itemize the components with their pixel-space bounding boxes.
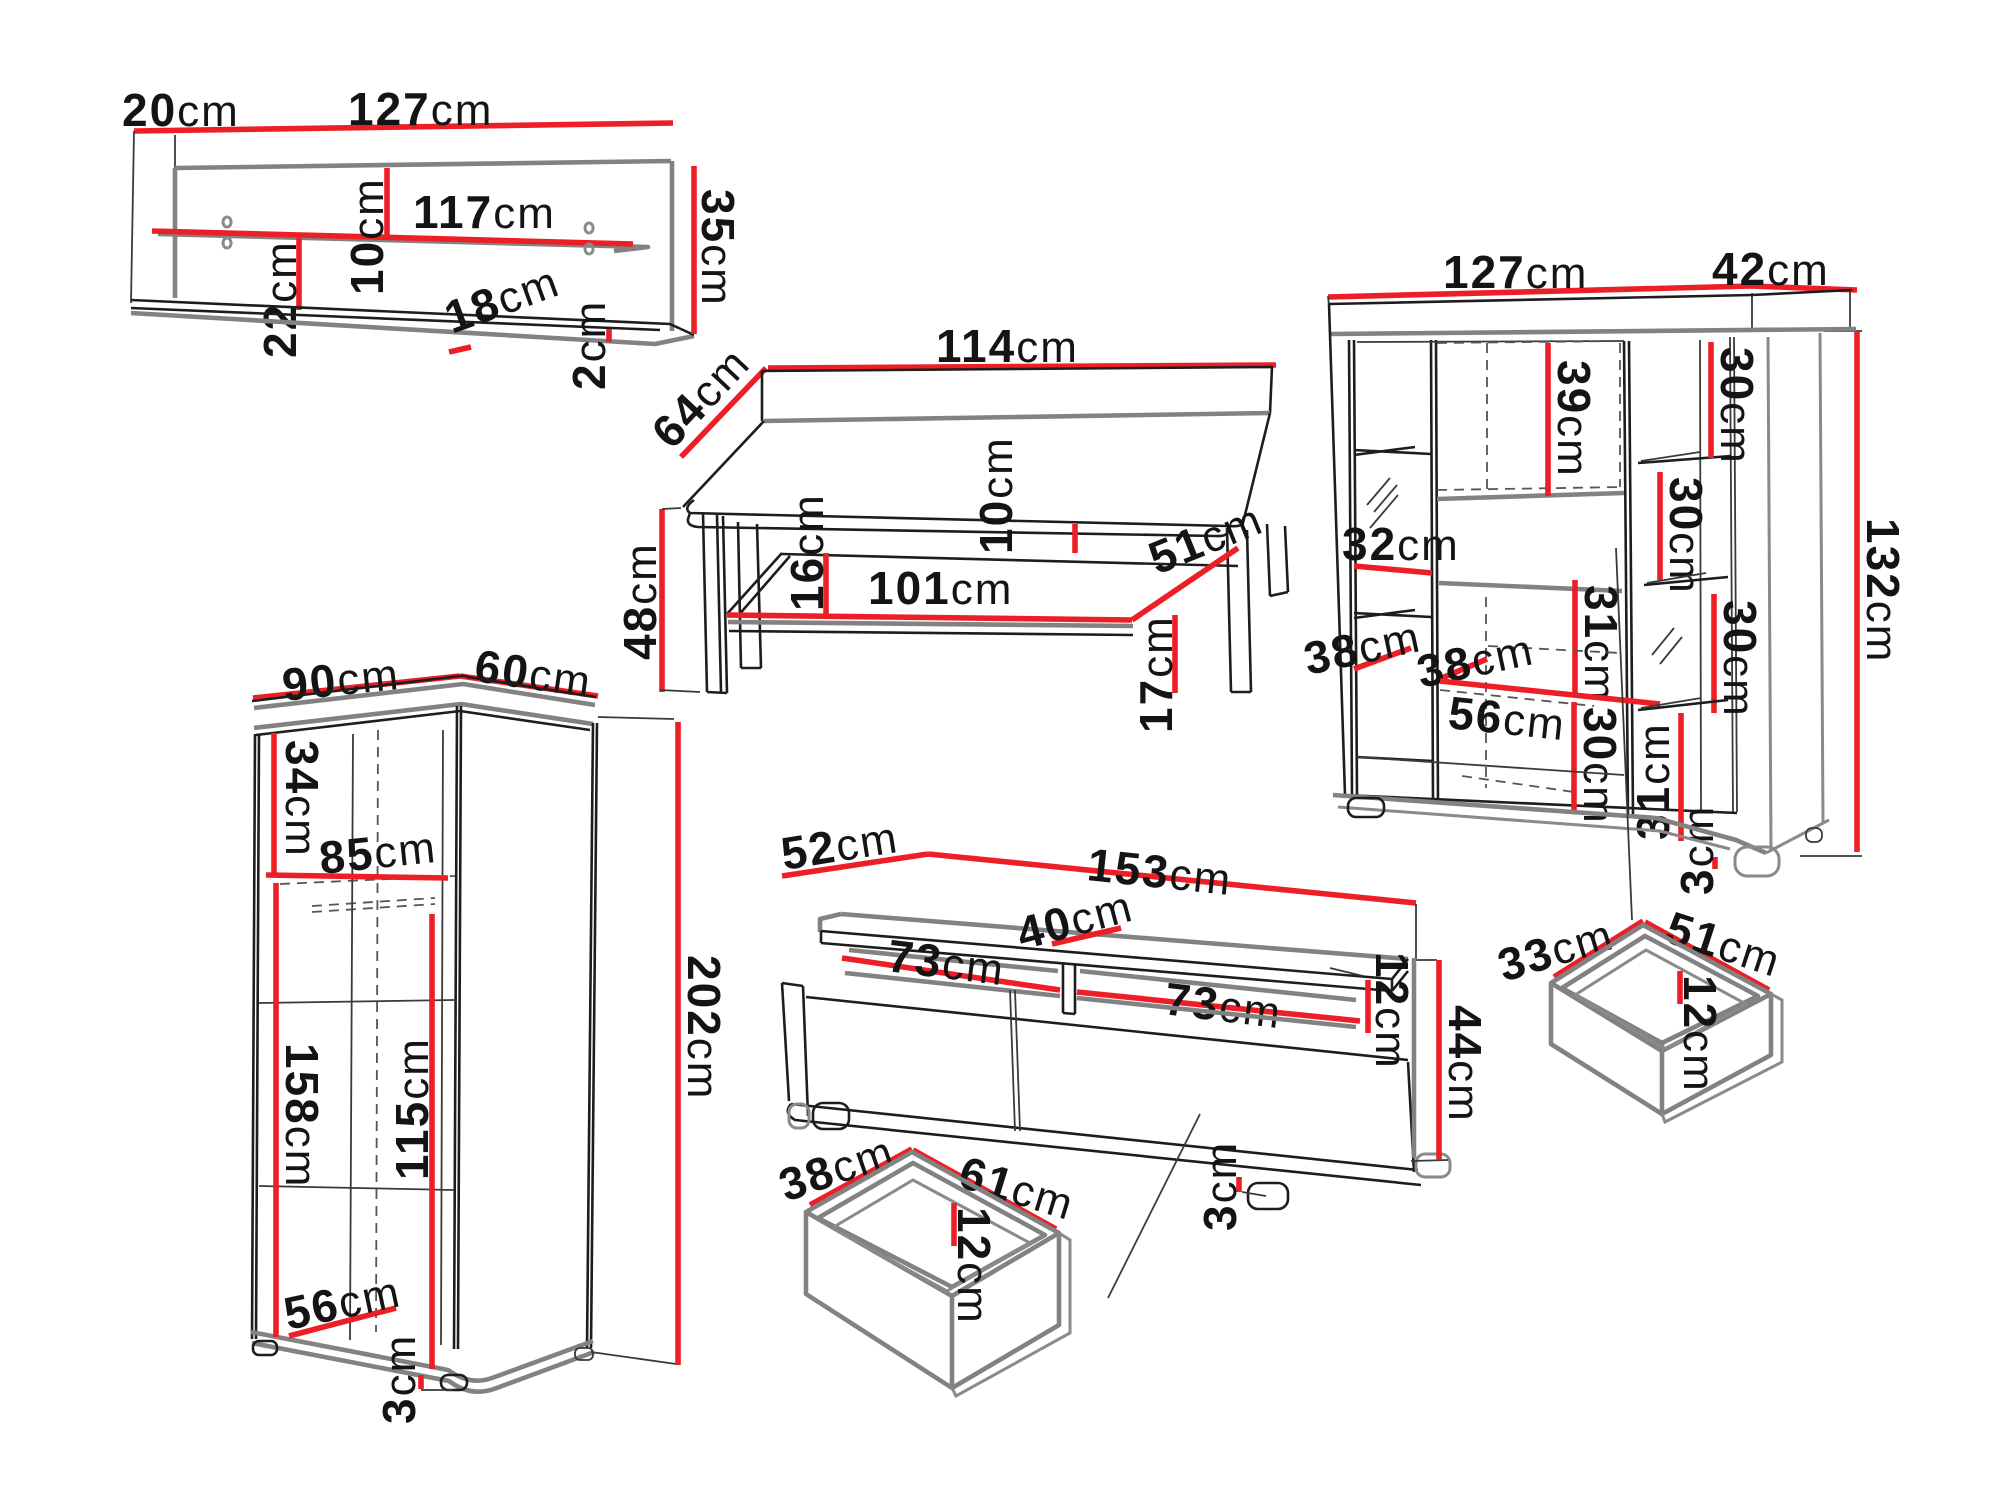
svg-text:115cm: 115cm <box>386 1037 438 1180</box>
svg-text:127cm: 127cm <box>1443 246 1588 298</box>
svg-text:10cm: 10cm <box>970 436 1022 554</box>
svg-text:32cm: 32cm <box>1342 518 1460 570</box>
svg-text:30cm: 30cm <box>1574 707 1626 825</box>
svg-text:22cm: 22cm <box>254 240 306 358</box>
svg-text:12cm: 12cm <box>1366 952 1418 1070</box>
svg-text:10cm: 10cm <box>341 177 393 295</box>
svg-text:158cm: 158cm <box>276 1043 328 1188</box>
svg-text:202cm: 202cm <box>678 955 730 1100</box>
svg-text:16cm: 16cm <box>781 493 833 611</box>
svg-text:35cm: 35cm <box>692 189 744 307</box>
svg-text:39cm: 39cm <box>1548 360 1600 478</box>
svg-text:127cm: 127cm <box>348 83 493 135</box>
svg-text:117cm: 117cm <box>413 186 556 238</box>
svg-text:44cm: 44cm <box>1439 1005 1491 1123</box>
svg-text:12cm: 12cm <box>1674 975 1726 1093</box>
svg-text:48cm: 48cm <box>614 542 666 660</box>
svg-text:3cm: 3cm <box>1194 1141 1246 1231</box>
svg-text:101cm: 101cm <box>868 562 1013 614</box>
svg-text:2cm: 2cm <box>563 300 615 390</box>
svg-text:17cm: 17cm <box>1130 615 1182 733</box>
svg-text:3cm: 3cm <box>373 1334 425 1424</box>
svg-text:20cm: 20cm <box>122 84 240 136</box>
svg-text:114cm: 114cm <box>936 320 1079 372</box>
svg-text:12cm: 12cm <box>948 1207 1000 1325</box>
svg-text:132cm: 132cm <box>1857 518 1909 663</box>
svg-text:30cm: 30cm <box>1711 347 1763 465</box>
svg-text:42cm: 42cm <box>1712 243 1830 295</box>
svg-text:3cm: 3cm <box>1671 805 1723 895</box>
